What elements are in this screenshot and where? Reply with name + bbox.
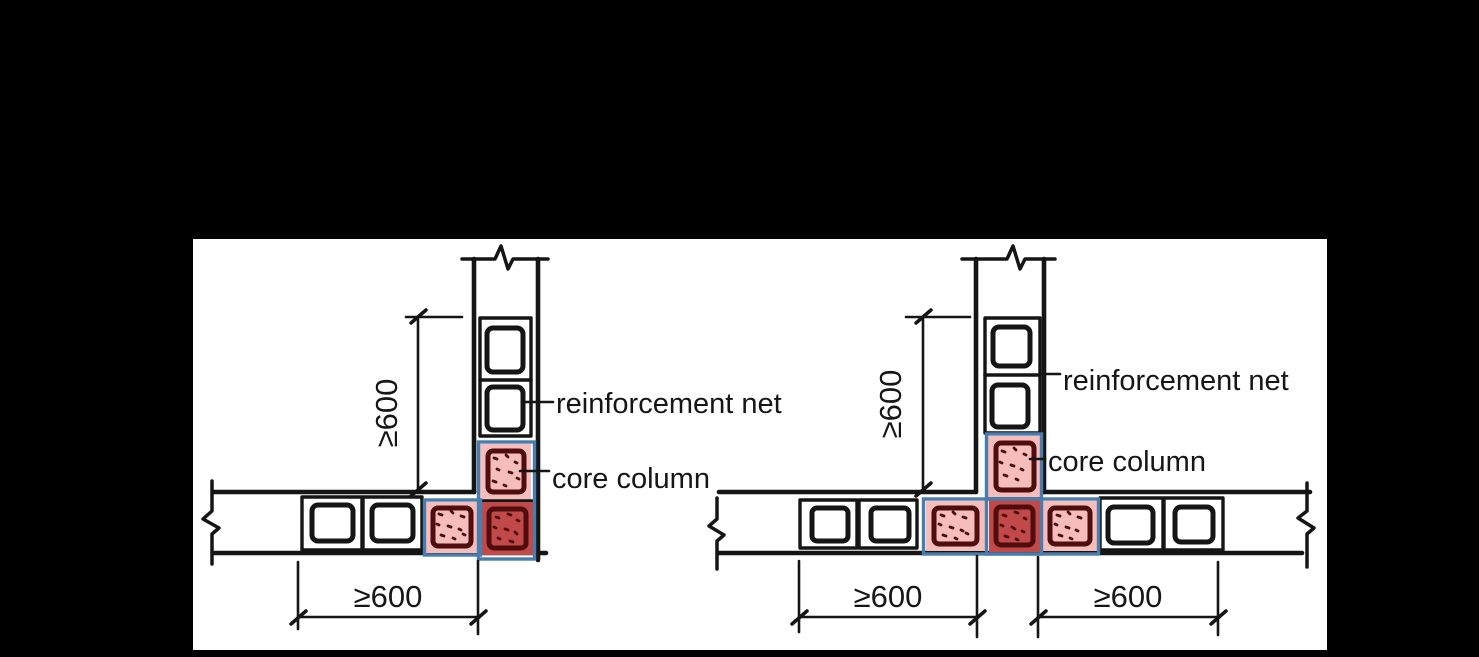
hollow-block-hole [812, 508, 848, 541]
hollow-block-hole [992, 385, 1028, 427]
hollow-block-hole [487, 387, 523, 430]
masonry-joint-diagram: ≥600 ≥600 reinforcement net core column [0, 0, 1479, 657]
dimension-text: ≥600 [369, 379, 404, 448]
hollow-block-hole [871, 508, 909, 541]
screenshot-canvas: ≥600 ≥600 reinforcement net core column [0, 0, 1479, 657]
hollow-block-hole [1175, 507, 1213, 542]
dimension-text: ≥600 [873, 370, 908, 439]
hollow-block-hole [487, 328, 523, 372]
core-column-label: core column [1048, 446, 1206, 478]
hollow-block-hole [1108, 507, 1153, 543]
hollow-block-hole [993, 327, 1030, 366]
reinforcement-net-label: reinforcement net [556, 388, 782, 420]
dimension-text: ≥600 [854, 579, 923, 614]
dimension-text: ≥600 [1094, 579, 1163, 614]
hollow-block-hole [312, 505, 353, 541]
hollow-block-hole [372, 505, 413, 541]
core-column-label: core column [552, 463, 710, 495]
reinforcement-net-label: reinforcement net [1063, 365, 1289, 397]
dimension-text: ≥600 [354, 579, 423, 614]
